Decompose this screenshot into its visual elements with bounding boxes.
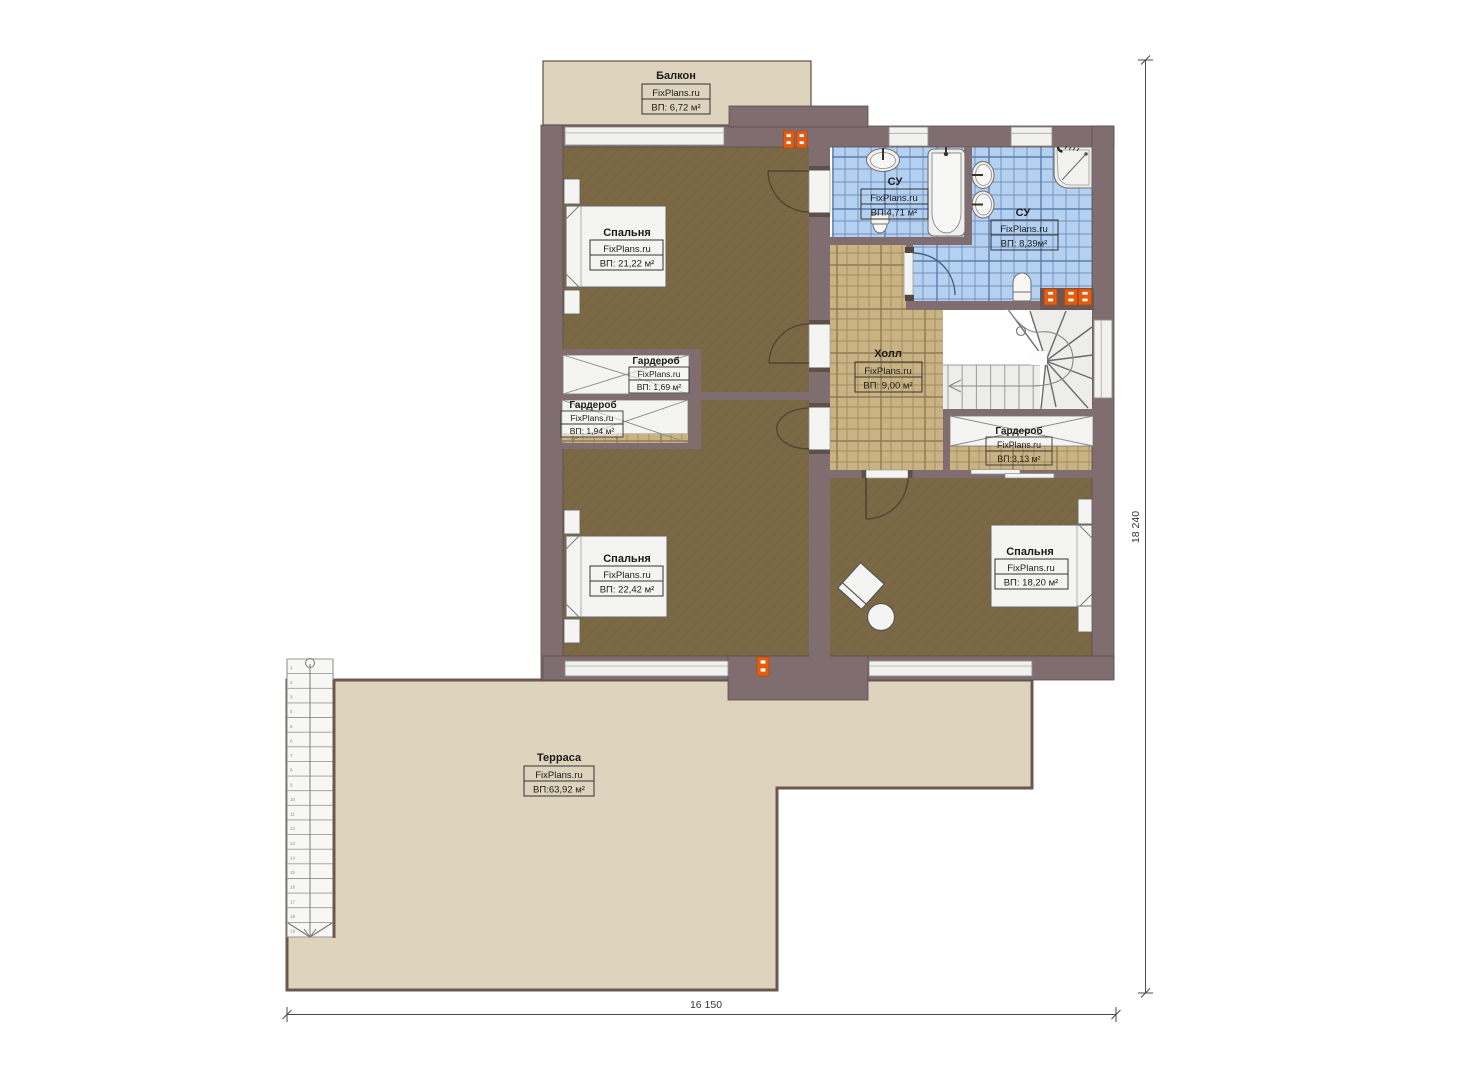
svg-text:18: 18 bbox=[290, 914, 296, 919]
svg-text:Холл: Холл bbox=[874, 348, 902, 360]
svg-text:16: 16 bbox=[290, 885, 296, 890]
svg-text:Гардероб: Гардероб bbox=[569, 399, 616, 411]
svg-text:Балкон: Балкон bbox=[656, 70, 696, 82]
svg-text:18 240: 18 240 bbox=[1130, 511, 1142, 543]
svg-text:Спальня: Спальня bbox=[603, 553, 651, 565]
svg-text:FixPlans.ru: FixPlans.ru bbox=[652, 88, 700, 99]
svg-text:15: 15 bbox=[290, 870, 296, 875]
svg-text:ВП: 9,00 м²: ВП: 9,00 м² bbox=[863, 381, 912, 392]
svg-text:Гардероб: Гардероб bbox=[995, 425, 1042, 437]
svg-text:ВП: 1,94 м²: ВП: 1,94 м² bbox=[570, 426, 615, 436]
svg-text:ВП:3,13 м²: ВП:3,13 м² bbox=[997, 454, 1040, 464]
svg-text:FixPlans.ru: FixPlans.ru bbox=[603, 570, 651, 581]
svg-text:FixPlans.ru: FixPlans.ru bbox=[870, 193, 918, 204]
svg-text:ВП:63,92 м²: ВП:63,92 м² bbox=[533, 785, 585, 796]
svg-text:FixPlans.ru: FixPlans.ru bbox=[1007, 563, 1055, 574]
svg-text:СУ: СУ bbox=[888, 176, 903, 188]
svg-text:FixPlans.ru: FixPlans.ru bbox=[535, 770, 583, 781]
svg-text:FixPlans.ru: FixPlans.ru bbox=[638, 369, 681, 379]
svg-text:Спальня: Спальня bbox=[1006, 546, 1054, 558]
svg-text:13: 13 bbox=[290, 841, 296, 846]
svg-text:FixPlans.ru: FixPlans.ru bbox=[603, 244, 651, 255]
svg-text:ВП: 1,69 м²: ВП: 1,69 м² bbox=[637, 382, 682, 392]
svg-text:11: 11 bbox=[290, 812, 295, 817]
svg-text:ВП: 18,20 м²: ВП: 18,20 м² bbox=[1004, 578, 1059, 589]
svg-text:ВП: 21,22 м²: ВП: 21,22 м² bbox=[600, 259, 655, 270]
svg-text:10: 10 bbox=[290, 797, 296, 802]
svg-text:12: 12 bbox=[290, 826, 296, 831]
svg-text:СУ: СУ bbox=[1016, 207, 1031, 219]
svg-text:FixPlans.ru: FixPlans.ru bbox=[864, 366, 912, 377]
svg-text:FixPlans.ru: FixPlans.ru bbox=[571, 413, 614, 423]
svg-text:14: 14 bbox=[290, 856, 296, 861]
svg-text:ВП: 6,72 м²: ВП: 6,72 м² bbox=[651, 103, 700, 114]
svg-text:16 150: 16 150 bbox=[690, 999, 722, 1011]
svg-text:19: 19 bbox=[290, 929, 296, 934]
svg-text:17: 17 bbox=[290, 899, 296, 904]
svg-text:ВП: 8,39м²: ВП: 8,39м² bbox=[1001, 239, 1048, 250]
svg-text:ВП: 22,42 м²: ВП: 22,42 м² bbox=[600, 585, 655, 596]
svg-text:FixPlans.ru: FixPlans.ru bbox=[997, 440, 1041, 450]
svg-text:FixPlans.ru: FixPlans.ru bbox=[1000, 224, 1048, 235]
svg-text:Спальня: Спальня bbox=[603, 227, 651, 239]
svg-text:Гардероб: Гардероб bbox=[632, 355, 679, 367]
svg-text:Терраса: Терраса bbox=[537, 752, 582, 764]
svg-text:ВП:4,71 м²: ВП:4,71 м² bbox=[871, 208, 918, 219]
